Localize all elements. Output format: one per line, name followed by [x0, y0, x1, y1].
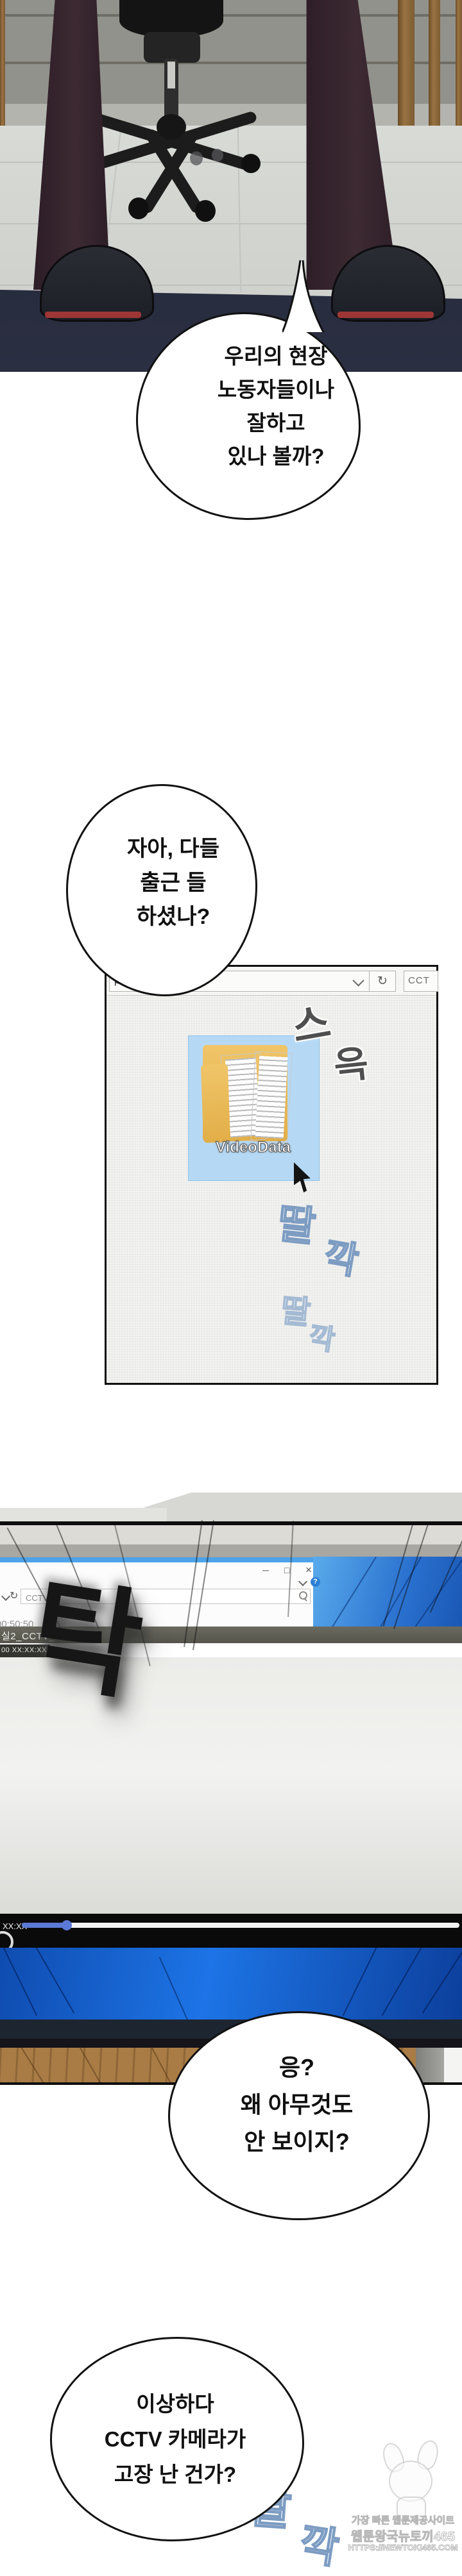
chair-wheel — [195, 200, 216, 222]
speech-line: 안 보이지? — [199, 2123, 395, 2161]
left-shoe-red-sole — [45, 312, 141, 318]
speech-line: 있나 볼까? — [186, 440, 366, 473]
speech-line: CCTV 카메라가 — [79, 2421, 271, 2457]
player-button-partial-icon[interactable] — [0, 1931, 13, 1948]
speed-line — [328, 1557, 377, 1627]
wood-grain-line — [21, 2047, 45, 2085]
watermark-text: 웹툰왕국뉴토끼465 — [346, 2526, 459, 2545]
chair-wheel — [128, 197, 149, 219]
right-shoe-red-sole — [338, 312, 434, 318]
speech-line: 우리의 현장 — [186, 340, 366, 373]
chair-mechanism — [144, 32, 200, 63]
speech-bubble-tail — [282, 256, 327, 335]
speech-line: 응? — [199, 2049, 395, 2086]
sfx-click: 딸 — [275, 1191, 318, 1253]
folder-label: VideoData — [188, 1139, 318, 1157]
speech-line: 자아, 다들 — [77, 832, 269, 866]
desk-gap — [444, 2048, 462, 2082]
folder-front-flap — [201, 1064, 230, 1142]
speech-line: 노동자들이나 — [186, 373, 366, 406]
speech-text: 자아, 다들 출근 들 하셨나? — [77, 832, 269, 934]
chair-hub — [157, 114, 186, 140]
sfx-click: 깍 — [296, 2509, 344, 2576]
folder-document — [250, 1051, 292, 1144]
speech-line: 출근 들 — [77, 866, 269, 900]
progress-knob[interactable] — [62, 1920, 72, 1930]
speech-line: 하셨나? — [77, 900, 269, 934]
sfx-click: 딸 — [279, 1285, 312, 1334]
maximize-button[interactable]: □ — [284, 1565, 289, 1575]
watermark-link: HTTPS://NEWTOKI465.COM — [346, 2543, 459, 2552]
speed-line — [382, 1948, 422, 2016]
speech-text: 응? 왜 아무것도 안 보이지? — [199, 2049, 395, 2161]
help-icon[interactable]: ? — [311, 1577, 320, 1587]
speed-line — [3, 1948, 37, 2016]
background-chair-wheel — [190, 151, 203, 165]
speed-line — [36, 1948, 75, 2014]
search-text: CCT — [408, 975, 430, 986]
refresh-icon[interactable]: ↻ — [377, 974, 388, 989]
wood-grain-line — [79, 2046, 102, 2085]
close-button[interactable]: × — [305, 1564, 312, 1577]
watermark-text: 가장 빠른 웹툰제공사이트 — [346, 2513, 459, 2527]
panel-file-explorer: pc,cc ↻ CCT VideoData — [105, 965, 438, 1385]
chair-cylinder-highlight — [167, 62, 175, 88]
speech-line: 이상하다 — [79, 2386, 271, 2421]
speed-line — [422, 1948, 462, 2014]
speech-text: 이상하다 CCTV 카메라가 고장 난 건가? — [79, 2386, 271, 2492]
chair-wheel — [241, 154, 261, 173]
sfx-slide: 윽 — [331, 1033, 371, 1090]
progress-track[interactable] — [22, 1923, 459, 1928]
speech-line: 왜 아무것도 — [199, 2086, 395, 2123]
ceiling-shade — [0, 1508, 167, 1523]
background-chair-wheel — [212, 149, 223, 162]
refresh-icon[interactable]: ↻ — [10, 1589, 18, 1602]
speech-line: 고장 난 건가? — [79, 2457, 271, 2492]
speech-text: 우리의 현장 노동자들이나 잘하고 있나 볼까? — [186, 340, 366, 473]
desktop-blue-lower — [0, 1948, 462, 2020]
speech-line: 잘하고 — [186, 406, 366, 440]
player-control-bar: XX:XX — [0, 1914, 462, 1948]
wood-pillar — [0, 0, 5, 126]
watermark-mascot-head — [389, 2461, 432, 2502]
progress-fill — [22, 1923, 67, 1928]
minimize-button[interactable]: ─ — [262, 1565, 269, 1575]
speed-line — [343, 1948, 377, 2016]
speed-line — [159, 1957, 189, 2020]
wood-grain-line — [151, 2046, 172, 2084]
